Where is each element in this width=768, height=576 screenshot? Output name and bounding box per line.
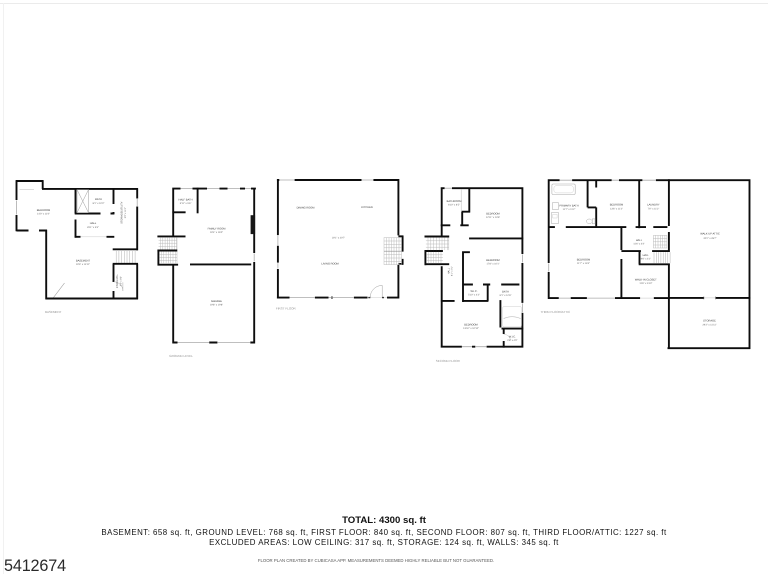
svg-text:FIRST FLOOR: FIRST FLOOR [276, 307, 297, 311]
svg-text:6'10" x 6'5": 6'10" x 6'5" [448, 204, 460, 207]
svg-text:5'9" x 8'2": 5'9" x 8'2" [120, 276, 123, 286]
svg-text:THIRD FLOOR/ATTIC: THIRD FLOOR/ATTIC [541, 310, 571, 314]
svg-text:STOR./UTIL.: STOR./UTIL. [116, 273, 119, 288]
svg-text:5'10" x 4'2": 5'10" x 4'2" [468, 294, 480, 297]
svg-text:14'0" x 11'0": 14'0" x 11'0" [37, 213, 50, 216]
svg-text:HALF BATH: HALF BATH [178, 198, 192, 201]
svg-text:8'11" x 5'3": 8'11" x 5'3" [87, 226, 99, 229]
svg-text:KITCHEN: KITCHEN [361, 206, 373, 209]
svg-text:BEDROOM: BEDROOM [486, 212, 499, 215]
svg-text:20'2" x 28'7": 20'2" x 28'7" [703, 237, 716, 240]
svg-text:8'1" x 10'0": 8'1" x 10'0" [93, 202, 105, 205]
svg-text:GARAGE: GARAGE [211, 300, 222, 303]
svg-text:HALL: HALL [636, 239, 643, 242]
svg-text:BEDROOM: BEDROOM [37, 209, 50, 212]
svg-text:HALL: HALL [643, 254, 650, 257]
svg-text:29'2" x 11'11": 29'2" x 11'11" [702, 323, 716, 326]
svg-text:PRIMARY BATH: PRIMARY BATH [559, 204, 578, 207]
svg-text:BEDROOM: BEDROOM [464, 323, 477, 326]
svg-text:11'7" x 13'4": 11'7" x 13'4" [577, 262, 590, 265]
svg-text:13'6" x 11'2": 13'6" x 11'2" [610, 207, 623, 210]
svg-text:11'7" x 11'2": 11'7" x 11'2" [563, 208, 576, 211]
svg-text:13'10" x 10'10": 13'10" x 10'10" [463, 327, 479, 330]
svg-text:BATHROOM: BATHROOM [447, 200, 462, 203]
svg-text:W.I.C.: W.I.C. [470, 290, 477, 293]
svg-text:19'8" x 19'8": 19'8" x 19'8" [210, 304, 223, 307]
svg-text:6'1" x 12'6": 6'1" x 12'6" [500, 294, 512, 297]
svg-text:WALK-UP ATTIC: WALK-UP ATTIC [700, 233, 720, 236]
svg-text:LIVING ROOM: LIVING ROOM [321, 263, 338, 266]
svg-text:STORAGE/UTILITY: STORAGE/UTILITY [121, 201, 124, 224]
svg-text:BATH: BATH [95, 198, 102, 201]
svg-text:20'1" x 20'7": 20'1" x 20'7" [332, 237, 345, 240]
svg-text:LAUNDRY: LAUNDRY [647, 204, 660, 207]
svg-text:SECOND FLOOR: SECOND FLOOR [436, 359, 461, 363]
svg-text:19'5" x 14'11": 19'5" x 14'11" [76, 263, 90, 266]
svg-text:STORAGE: STORAGE [703, 320, 716, 323]
svg-text:12'11" x 13'6": 12'11" x 13'6" [486, 216, 500, 219]
svg-text:GROUND LEVEL: GROUND LEVEL [169, 354, 193, 358]
svg-text:BEDROOM: BEDROOM [486, 259, 499, 262]
svg-text:11'6" x 5'10": 11'6" x 5'10" [639, 282, 652, 285]
svg-text:4'5" x 4'9": 4'5" x 4'9" [507, 339, 518, 342]
svg-text:HALL: HALL [447, 267, 450, 274]
svg-text:BEDROOM: BEDROOM [610, 204, 623, 207]
svg-text:BASEMENT: BASEMENT [45, 310, 62, 314]
svg-text:WALK-IN CLOSET: WALK-IN CLOSET [635, 278, 657, 281]
svg-text:4'1" x 9'1": 4'1" x 9'1" [451, 266, 454, 276]
svg-text:DINING ROOM: DINING ROOM [297, 206, 315, 209]
svg-text:11'6" x 3'3": 11'6" x 3'3" [633, 242, 644, 245]
svg-text:BASEMENT: BASEMENT [76, 259, 91, 262]
svg-text:2'2" x 11'0": 2'2" x 11'0" [124, 207, 127, 218]
svg-text:FAMILY ROOM: FAMILY ROOM [208, 227, 226, 230]
svg-text:W.I.C.: W.I.C. [509, 335, 516, 338]
svg-text:19'4" x 16'0": 19'4" x 16'0" [210, 231, 223, 234]
svg-text:3'11" x 5'6": 3'11" x 5'6" [180, 202, 192, 205]
svg-text:BEDROOM: BEDROOM [577, 258, 590, 261]
svg-text:9'6" x 3'1": 9'6" x 3'1" [641, 258, 651, 261]
svg-text:HALL: HALL [90, 222, 97, 225]
svg-text:BATH: BATH [502, 290, 509, 293]
svg-text:7'0" x 11'2": 7'0" x 11'2" [648, 207, 660, 210]
svg-text:17'8" x 10'1": 17'8" x 10'1" [486, 263, 499, 266]
